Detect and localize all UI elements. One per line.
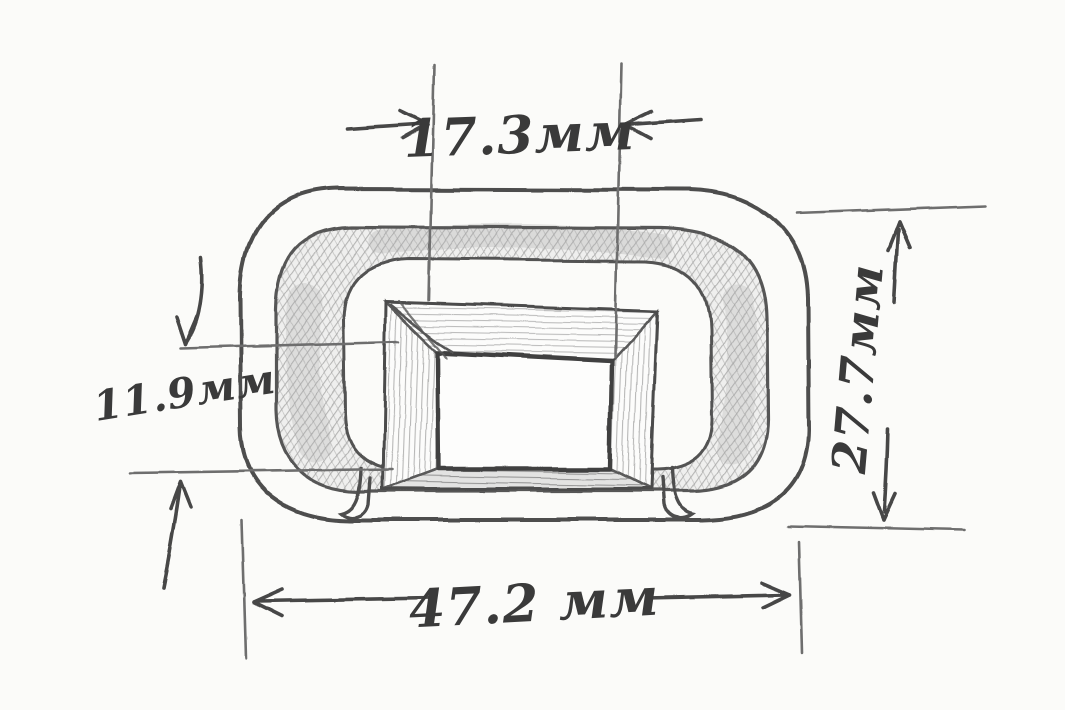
shading-smear-right	[732, 300, 742, 450]
top-dim-ext-left	[429, 64, 434, 300]
bottom-dim-ext-right	[799, 542, 802, 653]
inner-window-width-label: 17.3мм	[403, 101, 637, 170]
shading-smear-left	[302, 300, 315, 445]
right-dim-ext-lower	[788, 526, 964, 530]
bottom-dim-arrow-left	[254, 589, 433, 616]
bottom-dim-ext-left	[242, 520, 246, 658]
sketch-page: 17.3мм 11.9мм 27.7мм 47.2 мм	[0, 0, 1065, 710]
right-dim-ext-upper	[797, 206, 986, 213]
viewfinder-window	[437, 352, 612, 469]
left-dim-arrow-down	[176, 257, 202, 344]
top-dim-arrow-right	[625, 112, 701, 139]
left-dim-arrow-up	[163, 482, 191, 587]
bottom-dim-arrow-right	[646, 583, 790, 608]
eyecup-dimension-sketch: 17.3мм 11.9мм 27.7мм 47.2 мм	[0, 0, 1065, 710]
overall-height-label: 27.7мм	[822, 262, 895, 477]
overall-width-label: 47.2 мм	[407, 567, 660, 641]
rim-edge-height-label: 11.9мм	[90, 355, 279, 431]
